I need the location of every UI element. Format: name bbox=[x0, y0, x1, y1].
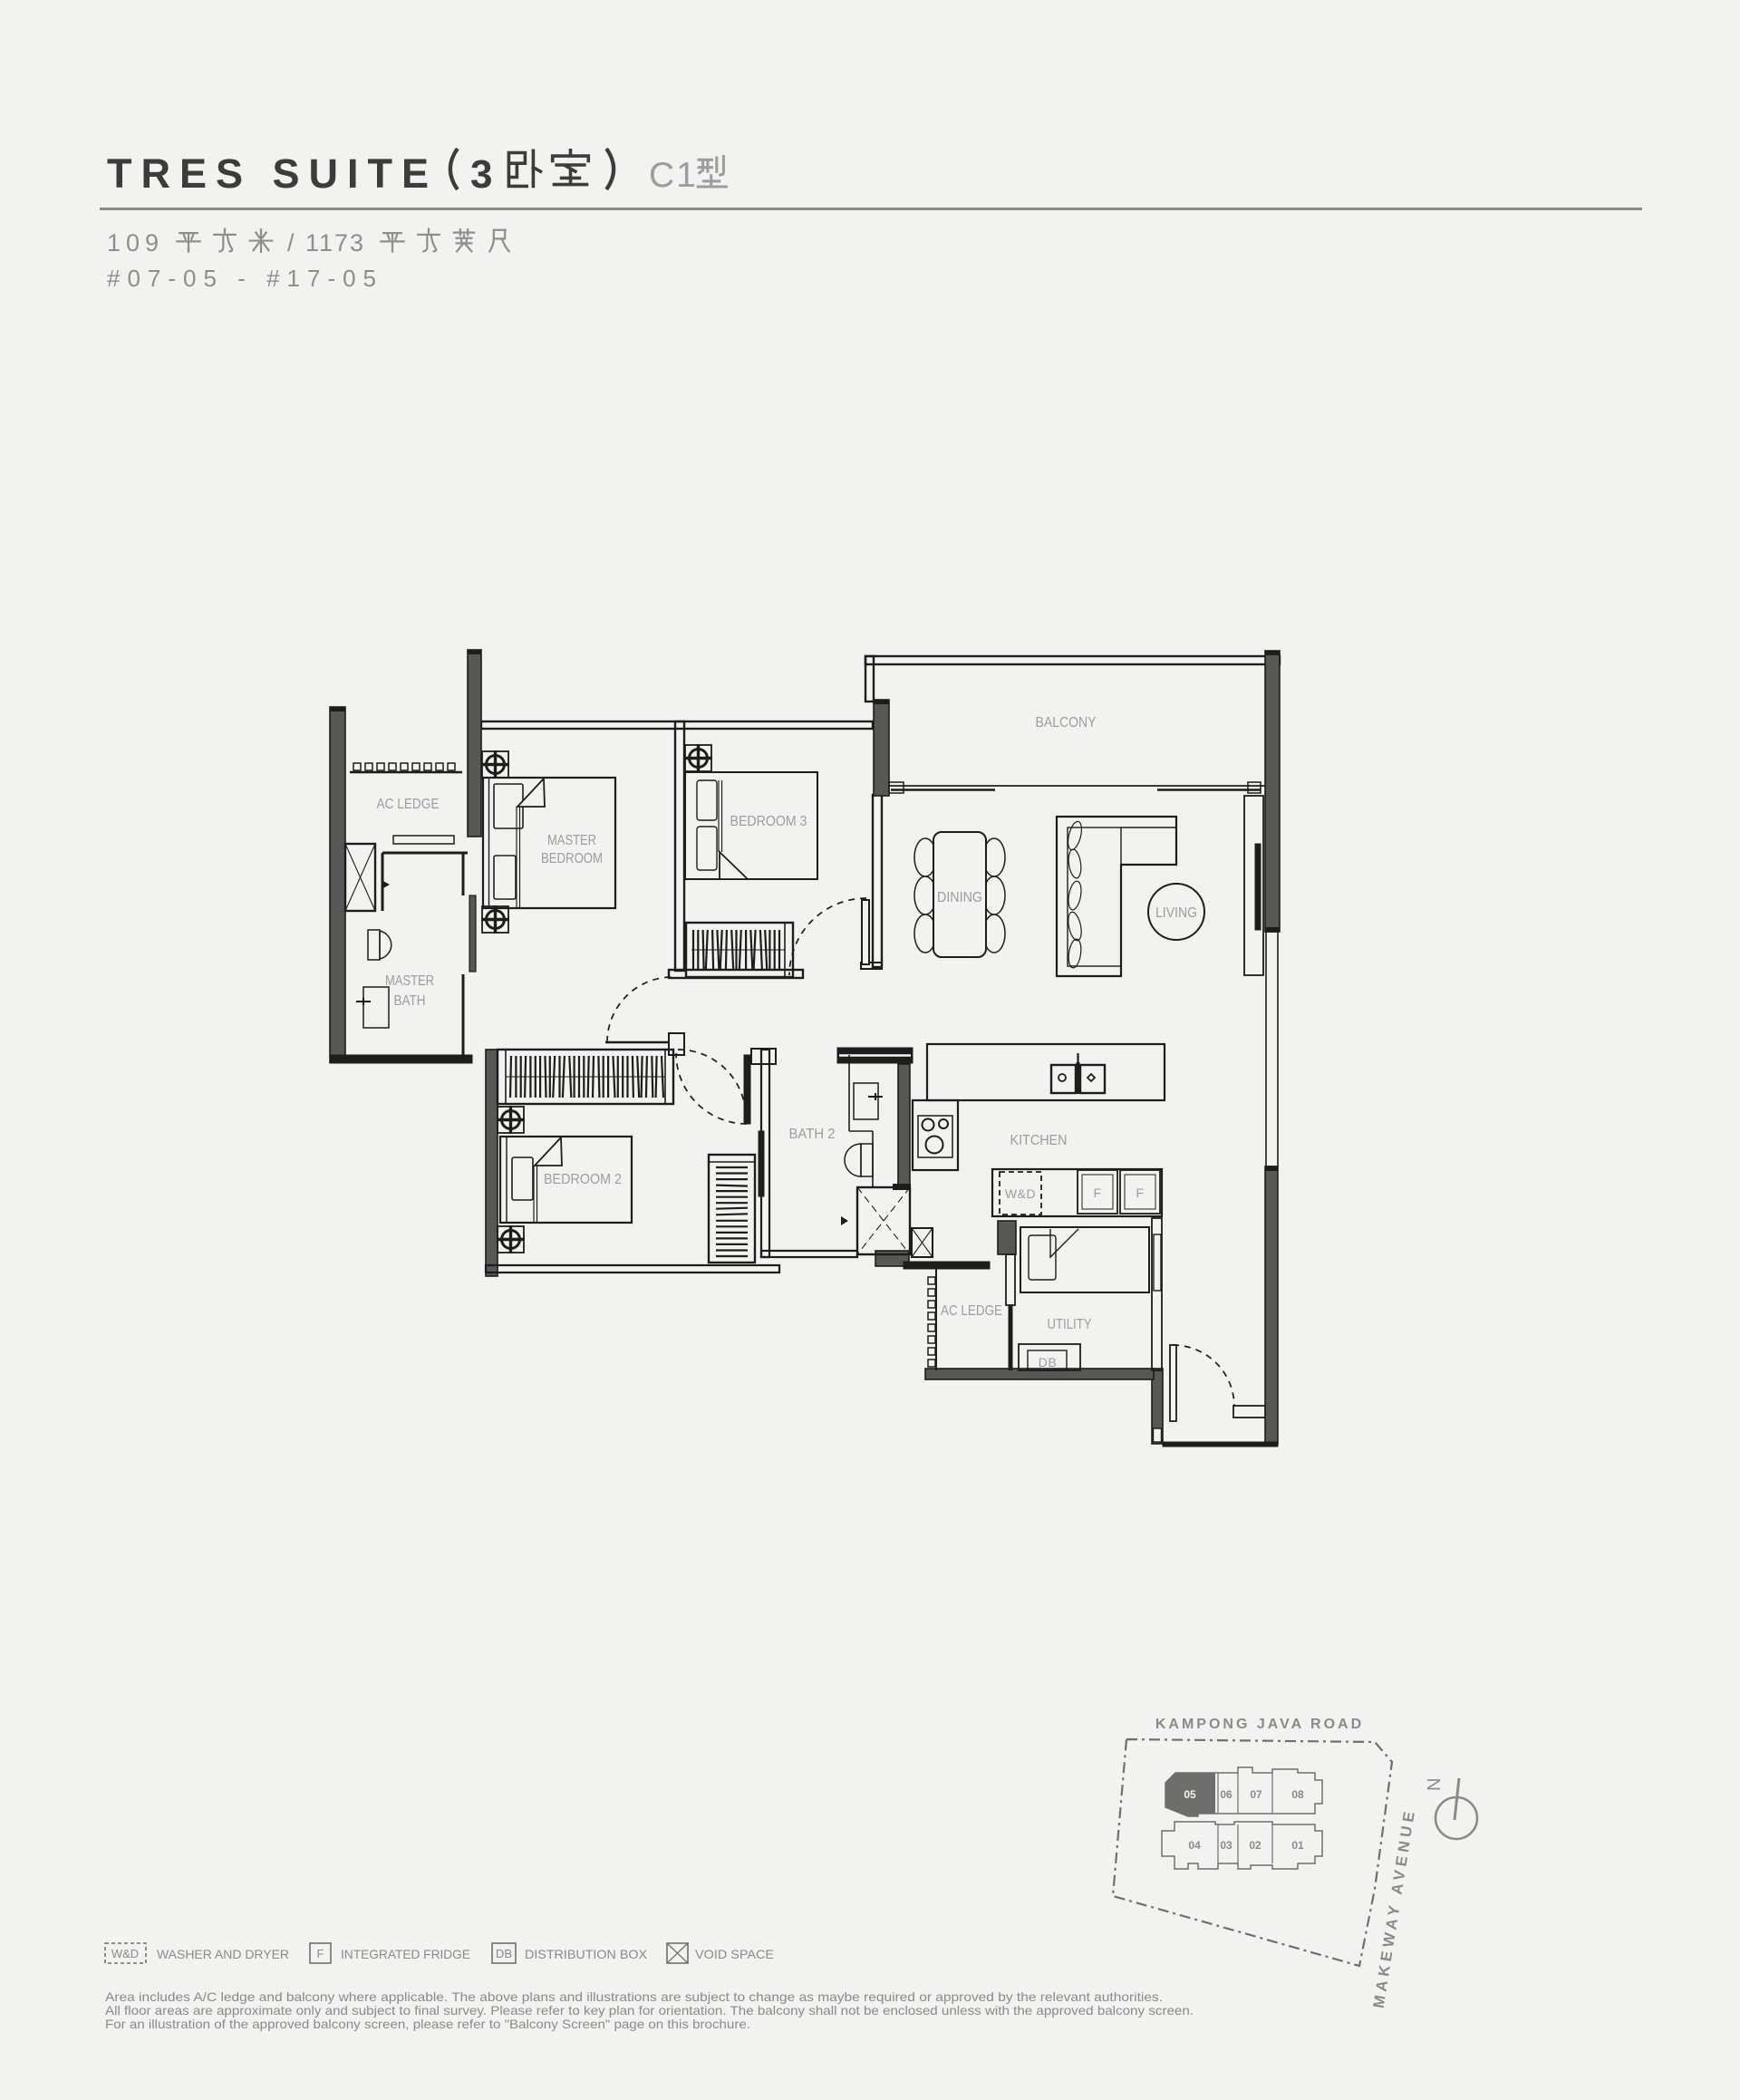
svg-text:F: F bbox=[1093, 1185, 1101, 1200]
svg-text:DINING: DINING bbox=[937, 890, 982, 905]
svg-text:BEDROOM: BEDROOM bbox=[541, 851, 603, 866]
svg-text:W&D: W&D bbox=[111, 1947, 139, 1960]
svg-text:UTILITY: UTILITY bbox=[1048, 1317, 1092, 1332]
svg-text:BEDROOM 3: BEDROOM 3 bbox=[730, 814, 807, 829]
svg-text:KAMPONG JAVA ROAD: KAMPONG JAVA ROAD bbox=[1155, 1717, 1364, 1732]
svg-text:LIVING: LIVING bbox=[1155, 905, 1197, 921]
svg-text:BEDROOM 2: BEDROOM 2 bbox=[544, 1172, 622, 1187]
svg-text:DISTRIBUTION BOX: DISTRIBUTION BOX bbox=[525, 1947, 648, 1961]
svg-text:3: 3 bbox=[470, 152, 492, 197]
svg-text:06: 06 bbox=[1220, 1788, 1232, 1801]
svg-text:F: F bbox=[1136, 1185, 1144, 1200]
svg-text:All floor areas are approximat: All floor areas are approximate only and… bbox=[105, 2003, 1194, 2018]
svg-text:109: 109 bbox=[107, 229, 164, 256]
svg-text:BATH 2: BATH 2 bbox=[789, 1127, 836, 1142]
svg-text:04: 04 bbox=[1188, 1839, 1201, 1852]
svg-text:KITCHEN: KITCHEN bbox=[1010, 1133, 1068, 1148]
svg-text:AC LEDGE: AC LEDGE bbox=[941, 1303, 1002, 1319]
svg-text:DB: DB bbox=[496, 1947, 512, 1960]
svg-text:TRES SUITE: TRES SUITE bbox=[107, 150, 438, 197]
svg-text:AC LEDGE: AC LEDGE bbox=[377, 797, 440, 812]
svg-text:07: 07 bbox=[1250, 1788, 1262, 1801]
svg-text:01: 01 bbox=[1291, 1839, 1304, 1852]
svg-text:BALCONY: BALCONY bbox=[1036, 715, 1097, 731]
svg-text:F: F bbox=[317, 1947, 324, 1960]
svg-text:#07-05 - #17-05: #07-05 - #17-05 bbox=[107, 265, 383, 292]
svg-text:WASHER AND DRYER: WASHER AND DRYER bbox=[157, 1947, 289, 1961]
svg-text:03: 03 bbox=[1220, 1839, 1232, 1852]
svg-text:N: N bbox=[1425, 1778, 1445, 1791]
svg-text:08: 08 bbox=[1291, 1788, 1304, 1801]
svg-text:MASTER: MASTER bbox=[547, 833, 596, 848]
svg-text:02: 02 bbox=[1249, 1839, 1261, 1852]
svg-text:1173: 1173 bbox=[305, 229, 365, 256]
svg-text:INTEGRATED FRIDGE: INTEGRATED FRIDGE bbox=[341, 1947, 470, 1961]
svg-text:For an illustration of the app: For an illustration of the approved balc… bbox=[105, 2017, 750, 2031]
svg-text:/: / bbox=[287, 229, 300, 256]
svg-text:MASTER: MASTER bbox=[385, 973, 434, 989]
svg-text:C1: C1 bbox=[649, 156, 698, 195]
svg-text:DB: DB bbox=[1039, 1355, 1057, 1369]
svg-text:05: 05 bbox=[1184, 1788, 1196, 1801]
svg-text:Area includes A/C ledge and ba: Area includes A/C ledge and balcony wher… bbox=[105, 1989, 1163, 2004]
svg-text:BATH: BATH bbox=[394, 993, 426, 1009]
svg-text:VOID SPACE: VOID SPACE bbox=[695, 1947, 774, 1961]
svg-text:W&D: W&D bbox=[1005, 1186, 1036, 1201]
